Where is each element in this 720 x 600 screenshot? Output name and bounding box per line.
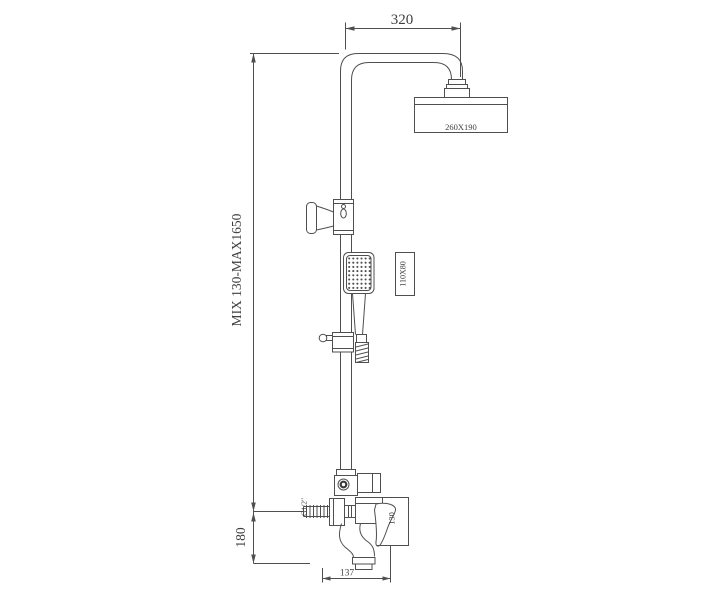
hand-shower bbox=[344, 253, 375, 335]
hand-shower-side-view: 110X80 bbox=[396, 253, 415, 296]
dimension-left-column: MIX 130-MAX1650 180 bbox=[229, 54, 339, 564]
head-connector-ring bbox=[447, 85, 468, 89]
shower-diagram: 320 MIX 130-MAX1650 180 260X190 bbox=[0, 0, 720, 600]
holder-lever-stem bbox=[327, 336, 333, 341]
tee-collar bbox=[337, 470, 356, 476]
hand-shower-handle bbox=[353, 294, 366, 335]
dim-height-range-label: MIX 130-MAX1650 bbox=[229, 213, 244, 326]
head-connector-nut bbox=[449, 80, 466, 85]
head-connector-block bbox=[445, 89, 470, 98]
dim-137-label: 137 bbox=[340, 569, 355, 579]
thread-label: G1/2" bbox=[300, 498, 309, 516]
dim-180-label: 180 bbox=[233, 527, 248, 548]
spout-tip bbox=[353, 558, 376, 565]
mixer: G1/2" bbox=[300, 498, 396, 570]
hose-cone bbox=[357, 335, 367, 343]
diverter-tee bbox=[335, 470, 381, 496]
mixer-connector bbox=[345, 506, 356, 518]
rain-head-size-label: 260X190 bbox=[445, 122, 477, 132]
wall-flange-disc bbox=[307, 203, 317, 234]
slider-holder bbox=[319, 333, 368, 363]
tee-outlet-block bbox=[358, 474, 381, 493]
holder-block bbox=[333, 333, 354, 353]
dimension-top-width: 320 bbox=[346, 12, 461, 77]
drawing-canvas: 320 MIX 130-MAX1650 180 260X190 bbox=[0, 0, 720, 600]
wall-bracket bbox=[307, 200, 354, 235]
spout bbox=[339, 524, 353, 558]
mixer-flange bbox=[330, 499, 345, 526]
holder-lever-knob bbox=[319, 334, 327, 342]
rain-shower-head: 260X190 bbox=[415, 80, 508, 133]
dim-320-label: 320 bbox=[391, 12, 414, 28]
hand-shower-size-label: 110X80 bbox=[399, 261, 408, 286]
dim-130-label: 130 bbox=[387, 512, 397, 525]
